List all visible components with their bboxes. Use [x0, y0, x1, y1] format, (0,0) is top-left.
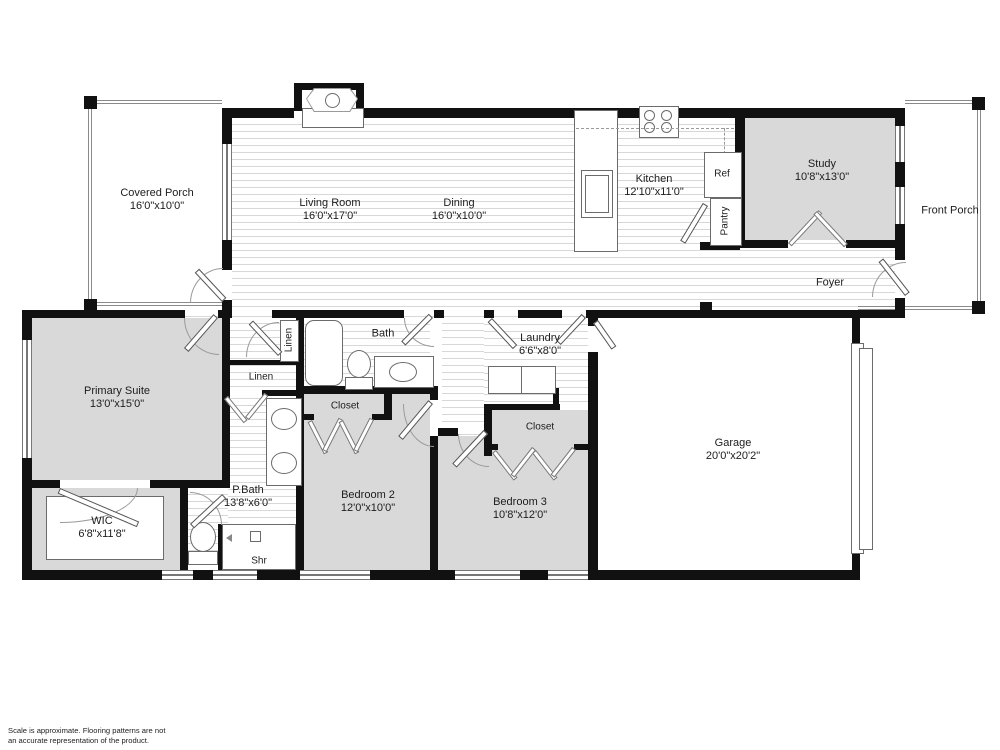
wall — [22, 570, 162, 580]
dryer — [521, 366, 556, 394]
wall — [735, 240, 788, 248]
wall — [484, 310, 494, 318]
room-label-pbath: P.Bath 13'8"x6'0" — [224, 484, 272, 510]
fireplace-wall — [294, 83, 302, 111]
window — [22, 340, 32, 458]
window — [222, 144, 232, 240]
wall — [22, 310, 185, 318]
bath-toilet-tank — [345, 377, 373, 390]
wall — [852, 552, 860, 580]
fireplace-wall — [356, 83, 364, 111]
room-label-kitchen: Kitchen 12'10"x11'0" — [624, 173, 684, 199]
floor-plan: Covered Porch 16'0"x10'0" Living Room 16… — [0, 0, 1000, 750]
wall — [588, 352, 598, 570]
wall — [193, 570, 213, 580]
pbath-sink — [271, 408, 297, 430]
room-label-linen-vertical: Linen — [284, 328, 295, 352]
covered-porch-edge — [90, 100, 222, 104]
wall — [518, 310, 562, 318]
wall — [846, 240, 905, 248]
front-porch-edge — [905, 100, 977, 104]
wall — [364, 108, 905, 118]
kitchen-sink-basin — [585, 175, 609, 213]
shower-drain — [250, 531, 261, 542]
wall — [438, 428, 458, 436]
wall — [302, 414, 314, 420]
floor-laundry-door-left — [494, 310, 518, 318]
floor-hall-bedrooms — [442, 310, 484, 436]
wall — [222, 108, 294, 118]
wall — [180, 488, 188, 570]
wall — [218, 310, 230, 318]
washer — [488, 366, 523, 394]
fireplace-flue — [325, 93, 340, 108]
door-panel-garage-entry — [593, 320, 616, 350]
window — [895, 126, 905, 162]
room-label-laundry: Laundry 6'6"x8'0" — [519, 332, 561, 358]
window — [162, 570, 193, 580]
garage-door — [859, 348, 873, 550]
wall — [588, 570, 860, 580]
wall — [22, 310, 32, 340]
room-label-closet-bed2: Closet — [331, 401, 359, 412]
room-label-primary-suite: Primary Suite 13'0"x15'0" — [84, 385, 150, 411]
wall — [257, 570, 300, 580]
wall — [895, 108, 905, 126]
window — [895, 187, 905, 224]
window — [300, 570, 370, 580]
room-label-bedroom3: Bedroom 3 10'8"x12'0" — [493, 496, 547, 522]
wall — [222, 118, 232, 144]
room-label-living-room: Living Room 16'0"x17'0" — [299, 197, 360, 223]
wall — [895, 162, 905, 187]
room-label-wic: WIC 6'8"x11'8" — [78, 515, 125, 541]
wall — [22, 480, 60, 488]
wall — [150, 480, 230, 488]
counter-outline — [724, 128, 735, 154]
porch-post — [972, 301, 985, 314]
room-label-foyer: Foyer — [816, 277, 844, 290]
wall — [222, 240, 232, 270]
bathtub — [305, 320, 343, 386]
wall — [22, 458, 32, 580]
wall — [430, 392, 438, 400]
bath-toilet-bowl — [347, 350, 371, 378]
wall — [700, 302, 712, 310]
counter-outline — [576, 118, 734, 129]
room-label-dining: Dining 16'0"x10'0" — [432, 197, 486, 223]
wall — [430, 436, 438, 570]
window — [213, 570, 257, 580]
label-pantry: Pantry — [720, 207, 731, 236]
pbath-sink — [271, 452, 297, 474]
wall — [372, 414, 392, 420]
covered-porch-edge — [88, 104, 92, 302]
room-label-front-porch: Front Porch — [913, 205, 987, 218]
wall — [520, 570, 548, 580]
wall — [370, 570, 455, 580]
wall — [852, 310, 860, 343]
wall — [434, 310, 444, 318]
wall — [272, 310, 304, 318]
room-label-covered-porch: Covered Porch 16'0"x10'0" — [120, 187, 194, 213]
room-label-closet-bed3: Closet — [526, 422, 554, 433]
room-label-shower: Shr — [251, 556, 267, 567]
label-refrigerator: Ref — [714, 169, 730, 180]
porch-post — [972, 97, 985, 110]
pbath-toilet-tank — [188, 551, 218, 565]
scale-disclaimer: Scale is approximate. Flooring patterns … — [8, 726, 165, 745]
shower-head-icon — [226, 534, 232, 542]
window — [455, 570, 520, 580]
porch-post — [84, 96, 97, 109]
room-label-study: Study 10'8"x13'0" — [795, 158, 849, 184]
window — [548, 570, 588, 580]
wall — [304, 310, 404, 318]
room-label-bath: Bath — [372, 328, 395, 341]
room-label-linen-horizontal: Linen — [249, 372, 273, 383]
wall — [484, 404, 560, 410]
bath-sink — [389, 362, 417, 382]
room-label-garage: Garage 20'0"x20'2" — [706, 437, 760, 463]
room-label-bedroom2: Bedroom 2 12'0"x10'0" — [341, 489, 395, 515]
